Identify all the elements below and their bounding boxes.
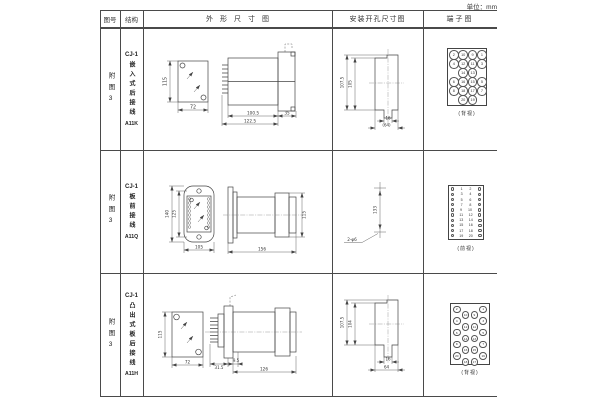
terminal-circle	[478, 187, 481, 190]
dim-label: 115	[158, 330, 163, 338]
terminal-circle	[478, 203, 481, 206]
outline-drawing-a11h: 115 72 31.5 9.5 126	[145, 273, 332, 397]
dim-label: 156	[258, 247, 266, 252]
dim-label: 122.5	[244, 119, 256, 124]
table-line	[423, 10, 424, 397]
dim-label: 72	[185, 360, 191, 365]
column-header-terminal: 端子图	[423, 14, 497, 24]
terminal-circle	[478, 208, 481, 211]
terminal-gap	[479, 323, 488, 329]
terminal-gap	[453, 323, 462, 329]
terminal-diagram-a11k: 2109141211314136161558181772019	[447, 48, 487, 106]
terminal-circle	[451, 224, 454, 227]
fig-no-text: 附图3	[105, 318, 115, 353]
install-drawing-a11h: 107.5 104 16 64	[332, 273, 423, 397]
model-name: CJ-1	[125, 293, 138, 299]
terminal-gap	[477, 95, 486, 104]
terminal-number: 4	[469, 192, 471, 196]
terminal-number: 18	[469, 229, 473, 233]
dim-label: 107.5	[340, 316, 345, 328]
terminal-row: 910	[451, 208, 482, 212]
terminal-circle	[478, 213, 481, 216]
model-code: A11K	[125, 121, 138, 127]
terminal-number: 11	[459, 213, 463, 217]
terminal-circle: 20	[458, 95, 468, 105]
terminal-circle	[478, 229, 481, 232]
terminal-row: 1718	[451, 229, 482, 233]
terminal-circle	[451, 187, 454, 190]
terminal-row: 1112	[451, 213, 482, 217]
terminal-number: 9	[460, 208, 462, 212]
model-name: CJ-1	[125, 52, 138, 58]
terminal-number: 15	[459, 223, 463, 227]
dim-label: 100.5	[247, 111, 259, 116]
terminal-row: 78	[451, 203, 482, 207]
terminal-row: 56	[451, 198, 482, 202]
fig-no-text: 附图3	[105, 72, 115, 107]
dim-label: 35	[284, 111, 290, 116]
terminal-gap	[453, 335, 462, 341]
terminal-circle	[451, 219, 454, 222]
dim-label: (64)	[382, 123, 391, 128]
terminal-row: 34	[451, 192, 482, 196]
terminal-circle: 18	[462, 358, 470, 366]
dim-label: 140	[165, 210, 170, 218]
terminal-circle	[451, 234, 454, 237]
terminal-gap	[479, 358, 488, 364]
table-line	[100, 10, 497, 11]
structure-type: 凸出式板后接线	[127, 302, 136, 369]
terminal-view-label: (背视)	[440, 110, 494, 117]
structure-row2: CJ-1 板前接线 A11Q	[120, 150, 143, 273]
terminal-row: 12	[451, 187, 482, 191]
terminal-circle	[451, 208, 454, 211]
terminal-number: 3	[461, 192, 463, 196]
structure-row1: CJ-1 嵌入式后接线 A11K	[120, 28, 143, 150]
fig-no-row3: 附图3	[100, 273, 120, 397]
model-code: A11H	[125, 371, 138, 377]
terminal-diagram-a11h: 2110943121165141387161520191817	[450, 303, 490, 365]
terminal-gap	[470, 329, 479, 335]
model-code: A11Q	[125, 234, 138, 240]
terminal-number: 19	[459, 234, 463, 238]
terminal-number: 20	[469, 234, 473, 238]
dim-label: 72	[190, 105, 196, 111]
model-name: CJ-1	[125, 184, 138, 190]
terminal-circle	[478, 234, 481, 237]
terminal-number: 5	[461, 198, 463, 202]
side-view: 156 115	[223, 187, 307, 254]
terminal-circle	[478, 224, 481, 227]
terminal-number: 17	[459, 229, 463, 233]
manual-page: 单位：mm 图号 结构 外形尺寸图 安装开孔尺寸图 端子图 附图3 附图3 附图…	[0, 0, 600, 400]
table-line	[143, 10, 144, 397]
hole-callout: 2-φ6	[347, 237, 357, 242]
dim-label: 9.5	[233, 358, 240, 363]
dim-label: 16	[385, 357, 391, 362]
fig-no-row1: 附图3	[100, 28, 120, 150]
column-header-structure: 结构	[120, 14, 143, 24]
fig-no-text: 附图3	[105, 194, 115, 229]
terminal-grid: 1234567891011121314151617181920	[449, 186, 483, 239]
fig-no-row2: 附图3	[100, 150, 120, 273]
terminal-gap	[461, 329, 470, 335]
terminal-circle	[451, 198, 454, 201]
column-header-fig: 图号	[100, 14, 120, 24]
dim-label: 31.5	[215, 365, 224, 370]
terminal-row: 1314	[451, 218, 482, 222]
structure-type: 嵌入式后接线	[127, 61, 136, 118]
install-drawing-a11k: 107.5 105 16 (64)	[332, 28, 423, 150]
terminal-row: 1516	[451, 223, 482, 227]
dim-label: 126	[260, 367, 268, 372]
terminal-number: 13	[459, 218, 463, 222]
column-header-install: 安装开孔尺寸图	[332, 14, 423, 24]
dim-label: 115	[302, 211, 307, 219]
front-view: 140 125 105	[165, 186, 215, 253]
install-drawing-a11q: 133 2-φ6	[332, 150, 423, 273]
front-view: 115 72	[163, 61, 209, 113]
terminal-circle	[451, 229, 454, 232]
dim-label: 64	[384, 365, 390, 370]
dim-label: 133	[373, 206, 378, 214]
terminal-number: 16	[469, 223, 473, 227]
terminal-number: 8	[469, 203, 471, 207]
terminal-gap	[449, 68, 458, 77]
terminal-diagram-a11q: 1234567891011121314151617181920	[448, 185, 484, 240]
side-view: 31.5 9.5 126	[205, 295, 302, 374]
terminal-grid: 2110943121165141387161520191817	[451, 304, 489, 364]
structure-type: 板前接线	[127, 193, 136, 231]
outline-drawing-a11k: 115 72 100.5 35 122.5	[145, 28, 332, 150]
terminal-number: 10	[468, 208, 472, 212]
terminal-gap	[477, 68, 486, 77]
dim-label: 105	[195, 245, 203, 250]
structure-row3: CJ-1 凸出式板后接线 A11H	[120, 273, 143, 397]
terminal-number: 6	[469, 198, 471, 202]
terminal-circle	[478, 193, 481, 196]
terminal-number: 12	[469, 213, 473, 217]
terminal-circle	[478, 198, 481, 201]
terminal-number: 7	[461, 203, 463, 207]
terminal-circle: 17	[471, 358, 479, 366]
terminal-gap	[479, 335, 488, 341]
terminal-circle: 19	[468, 95, 478, 105]
terminal-number: 1	[461, 187, 463, 191]
dim-label: 107.5	[340, 76, 345, 88]
terminal-gap	[453, 358, 462, 364]
front-view: 115 72	[158, 312, 204, 368]
terminal-circle	[451, 203, 454, 206]
terminal-strips	[188, 198, 210, 229]
terminal-circle	[478, 219, 481, 222]
terminal-view-label: (前视)	[440, 245, 492, 252]
dim-label: 16	[385, 116, 391, 121]
terminal-number: 2	[469, 187, 471, 191]
column-header-outline: 外形尺寸图	[143, 14, 332, 24]
terminal-gap	[449, 95, 458, 104]
dim-label: 115	[163, 77, 169, 86]
terminal-circle	[451, 213, 454, 216]
terminal-view-label: (背视)	[442, 369, 498, 376]
dim-label: 104	[348, 320, 353, 328]
terminal-grid: 2109141211314136161558181772019	[448, 49, 486, 105]
side-view: 100.5 35 122.5	[222, 44, 296, 126]
dim-label: 105	[348, 80, 353, 88]
terminal-row: 1920	[451, 234, 482, 238]
terminal-circle	[451, 193, 454, 196]
dim-label: 125	[172, 210, 177, 218]
terminal-number: 14	[469, 218, 473, 222]
outline-drawing-a11q: 140 125 105 156 115	[145, 150, 332, 273]
